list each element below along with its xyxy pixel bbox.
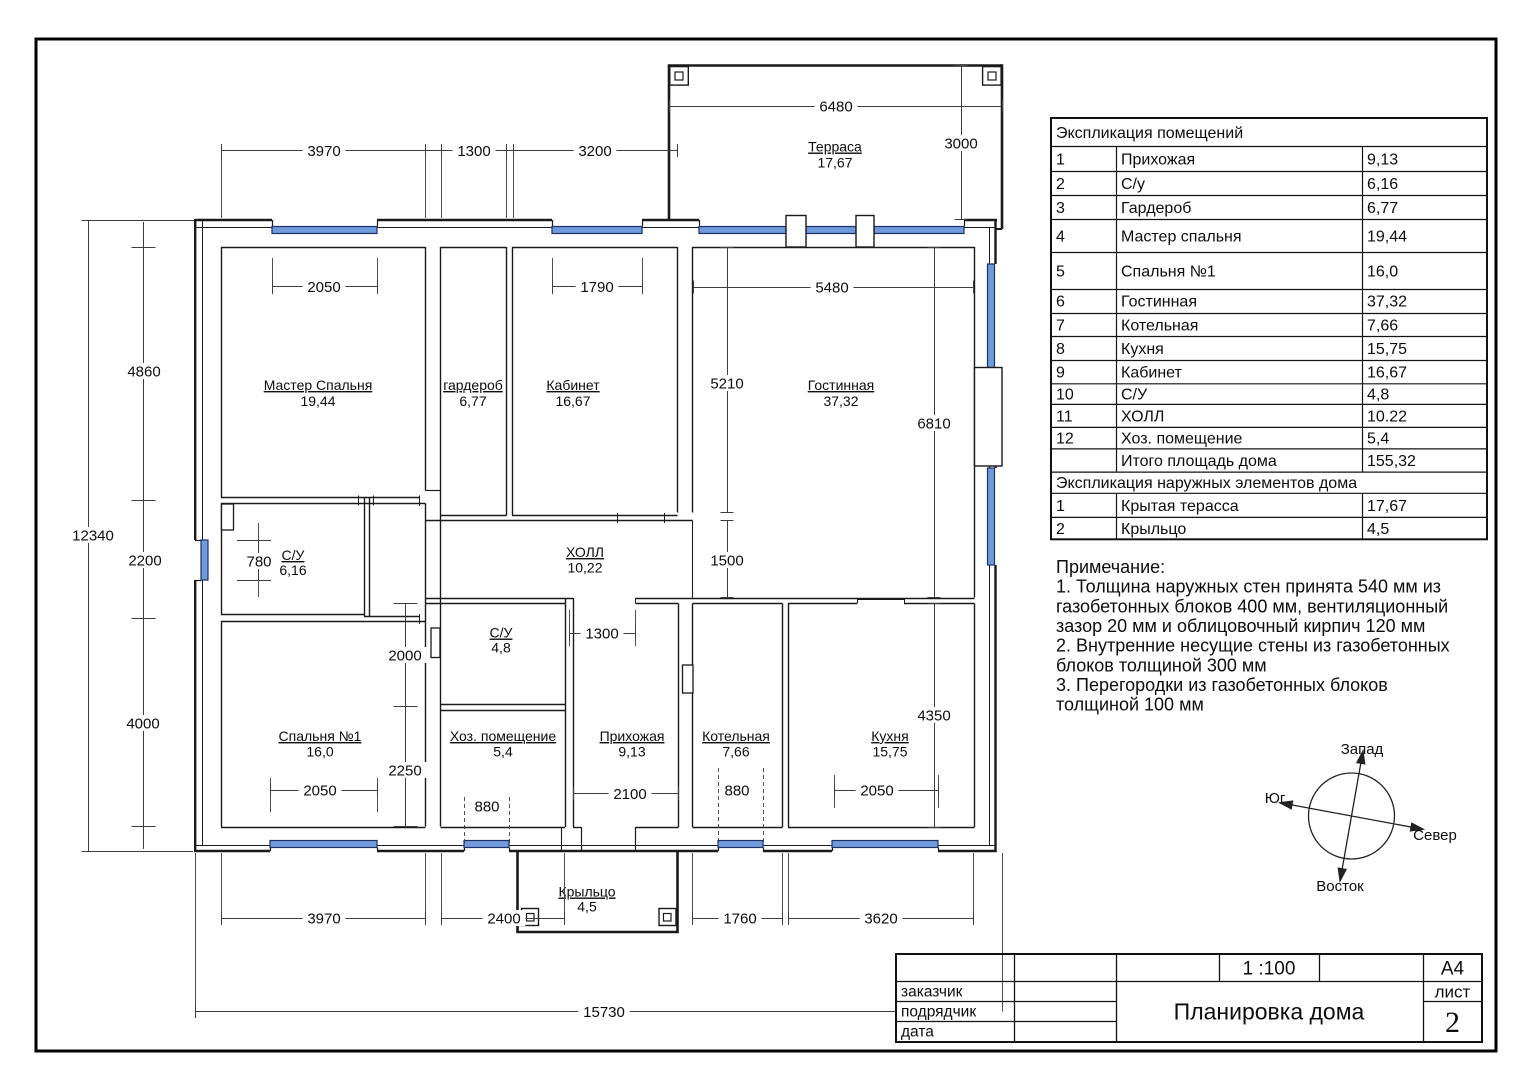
svg-text:8: 8 — [1056, 341, 1065, 358]
svg-text:Спальня №1: Спальня №1 — [1121, 263, 1216, 280]
svg-text:4000: 4000 — [126, 715, 159, 732]
svg-text:Кабинет: Кабинет — [1121, 364, 1183, 381]
svg-text:Гостинная: Гостинная — [1121, 294, 1197, 311]
svg-text:780: 780 — [246, 553, 271, 570]
svg-text:16,67: 16,67 — [555, 393, 590, 409]
svg-text:7,66: 7,66 — [1367, 317, 1398, 334]
svg-text:1. Толщина наружных стен приня: 1. Толщина наружных стен принята 540 мм … — [1056, 577, 1441, 597]
svg-text:Планировка дома: Планировка дома — [1174, 999, 1365, 1025]
svg-text:4: 4 — [1056, 228, 1065, 245]
svg-text:2: 2 — [1056, 521, 1065, 538]
svg-text:С/У: С/У — [1121, 387, 1148, 404]
svg-text:10: 10 — [1056, 387, 1074, 404]
svg-text:3200: 3200 — [578, 143, 611, 160]
svg-text:Мастер спальня: Мастер спальня — [1121, 228, 1242, 245]
svg-text:10,22: 10,22 — [567, 560, 602, 576]
svg-text:1500: 1500 — [710, 552, 743, 569]
svg-text:2000: 2000 — [388, 647, 421, 664]
svg-text:4350: 4350 — [917, 707, 950, 724]
svg-text:Прихожая: Прихожая — [600, 728, 665, 744]
svg-text:С/У: С/У — [282, 547, 305, 563]
svg-text:подрядчик: подрядчик — [901, 1004, 976, 1021]
svg-text:5: 5 — [1056, 263, 1065, 280]
svg-text:155,32: 155,32 — [1367, 453, 1416, 470]
svg-text:ХОЛЛ: ХОЛЛ — [566, 544, 604, 560]
svg-text:Крыльцо: Крыльцо — [1121, 521, 1186, 538]
svg-text:газобетонных блоков 400 мм, ве: газобетонных блоков 400 мм, вентиляционн… — [1056, 596, 1448, 616]
svg-text:3: 3 — [1056, 200, 1065, 217]
svg-text:Хоз. помещение: Хоз. помещение — [1121, 431, 1243, 448]
svg-text:1300: 1300 — [585, 625, 618, 642]
svg-text:заказчик: заказчик — [901, 984, 963, 1001]
svg-text:4,5: 4,5 — [577, 899, 597, 915]
svg-text:5,4: 5,4 — [493, 744, 513, 760]
svg-text:2400: 2400 — [487, 910, 520, 927]
svg-text:зазор 20 мм и облицовочный кир: зазор 20 мм и облицовочный кирпич 120 мм — [1056, 616, 1425, 636]
svg-text:Итого площадь дома: Итого площадь дома — [1121, 453, 1277, 470]
svg-text:лист: лист — [1435, 983, 1471, 1002]
svg-text:Мастер Спальня: Мастер Спальня — [264, 377, 373, 393]
svg-text:12340: 12340 — [72, 527, 114, 544]
svg-text:1: 1 — [1056, 151, 1065, 168]
svg-text:880: 880 — [474, 798, 499, 815]
svg-text:3620: 3620 — [864, 910, 897, 927]
svg-text:ХОЛЛ: ХОЛЛ — [1121, 408, 1164, 425]
svg-text:15,75: 15,75 — [1367, 341, 1407, 358]
svg-text:9: 9 — [1056, 364, 1065, 381]
svg-text:С/у: С/у — [1121, 176, 1145, 193]
svg-text:4860: 4860 — [127, 363, 160, 380]
svg-text:6: 6 — [1056, 294, 1065, 311]
svg-text:9,13: 9,13 — [618, 744, 645, 760]
svg-text:17,67: 17,67 — [817, 155, 852, 171]
svg-text:Котельная: Котельная — [1121, 317, 1198, 334]
svg-text:7: 7 — [1056, 317, 1065, 334]
svg-text:37,32: 37,32 — [1367, 294, 1407, 311]
svg-text:1760: 1760 — [723, 910, 756, 927]
svg-text:6,16: 6,16 — [279, 562, 306, 578]
svg-text:Кабинет: Кабинет — [546, 377, 600, 393]
svg-text:С/У: С/У — [490, 625, 513, 641]
svg-text:1300: 1300 — [457, 143, 490, 160]
svg-text:дата: дата — [901, 1024, 934, 1041]
svg-text:3970: 3970 — [307, 143, 340, 160]
svg-text:3000: 3000 — [944, 135, 977, 152]
svg-text:19,44: 19,44 — [1367, 228, 1407, 245]
svg-text:Запад: Запад — [1341, 741, 1384, 758]
svg-text:Примечание:: Примечание: — [1056, 557, 1165, 577]
svg-text:11: 11 — [1056, 408, 1073, 425]
svg-text:5210: 5210 — [710, 375, 743, 392]
svg-text:Хоз. помещение: Хоз. помещение — [450, 728, 556, 744]
svg-text:Гостинная: Гостинная — [808, 377, 875, 393]
svg-text:Крытая терасса: Крытая терасса — [1121, 498, 1239, 515]
svg-text:7,66: 7,66 — [722, 744, 749, 760]
svg-text:6,77: 6,77 — [459, 393, 486, 409]
svg-text:Котельная: Котельная — [702, 728, 770, 744]
svg-text:2. Внутренние несущие стены из: 2. Внутренние несущие стены из газобетон… — [1056, 636, 1450, 656]
svg-text:2: 2 — [1445, 1006, 1460, 1039]
svg-text:Спальня №1: Спальня №1 — [279, 728, 362, 744]
svg-text:19,44: 19,44 — [300, 393, 335, 409]
svg-text:12: 12 — [1056, 431, 1074, 448]
svg-text:37,32: 37,32 — [823, 393, 858, 409]
svg-text:1790: 1790 — [580, 279, 613, 296]
svg-text:2: 2 — [1056, 176, 1065, 193]
svg-text:2250: 2250 — [388, 762, 421, 779]
svg-text:блоков толщиной 300 мм: блоков толщиной 300 мм — [1056, 655, 1267, 675]
svg-text:2050: 2050 — [307, 279, 340, 296]
svg-text:3970: 3970 — [307, 910, 340, 927]
svg-text:5480: 5480 — [815, 279, 848, 296]
svg-text:Кухня: Кухня — [1121, 341, 1164, 358]
svg-text:гардероб: гардероб — [443, 377, 503, 393]
svg-text:Юг: Юг — [1265, 790, 1286, 807]
svg-text:15730: 15730 — [583, 1004, 625, 1021]
svg-text:Кухня: Кухня — [871, 728, 908, 744]
svg-text:Терраса: Терраса — [808, 139, 862, 155]
svg-text:6480: 6480 — [819, 98, 852, 115]
svg-text:Крыльцо: Крыльцо — [558, 884, 615, 900]
svg-text:15,75: 15,75 — [872, 744, 907, 760]
svg-text:17,67: 17,67 — [1367, 498, 1407, 515]
svg-text:Север: Север — [1413, 827, 1457, 844]
svg-text:9,13: 9,13 — [1367, 151, 1398, 168]
svg-text:Восток: Восток — [1316, 878, 1364, 895]
svg-text:6,16: 6,16 — [1367, 176, 1398, 193]
svg-text:2100: 2100 — [613, 786, 646, 803]
svg-text:5,4: 5,4 — [1367, 431, 1389, 448]
svg-text:2200: 2200 — [128, 552, 161, 569]
svg-text:Экспликация наружных элементов: Экспликация наружных элементов дома — [1056, 475, 1357, 492]
svg-text:2050: 2050 — [303, 782, 336, 799]
svg-text:Гардероб: Гардероб — [1121, 200, 1191, 217]
svg-text:4,8: 4,8 — [1367, 387, 1389, 404]
svg-text:6,77: 6,77 — [1367, 200, 1398, 217]
svg-text:толщиной 100 мм: толщиной 100 мм — [1056, 695, 1204, 715]
svg-text:16,0: 16,0 — [1367, 263, 1398, 280]
svg-text:880: 880 — [724, 782, 749, 799]
svg-text:А4: А4 — [1441, 959, 1465, 980]
svg-text:Прихожая: Прихожая — [1121, 151, 1195, 168]
svg-text:6810: 6810 — [917, 415, 950, 432]
svg-text:4,5: 4,5 — [1367, 521, 1389, 538]
svg-text:3. Перегородки из газобетонных: 3. Перегородки из газобетонных блоков — [1056, 675, 1388, 695]
svg-text:1: 1 — [1056, 498, 1065, 515]
svg-text:1 :100: 1 :100 — [1243, 959, 1296, 980]
svg-text:Экспликация помещений: Экспликация помещений — [1056, 125, 1243, 142]
svg-text:2050: 2050 — [860, 782, 893, 799]
svg-text:4,8: 4,8 — [491, 640, 511, 656]
svg-text:16,67: 16,67 — [1367, 364, 1407, 381]
svg-text:10.22: 10.22 — [1367, 408, 1407, 425]
svg-text:16,0: 16,0 — [306, 744, 333, 760]
